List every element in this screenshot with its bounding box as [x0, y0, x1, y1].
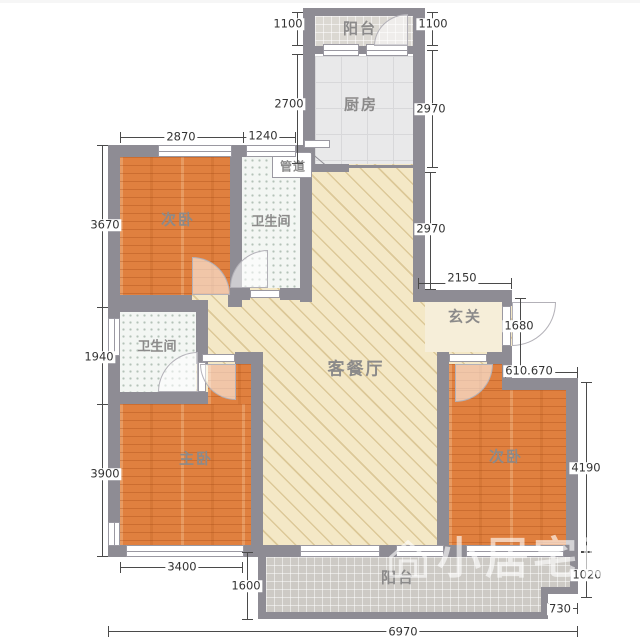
bedroom-right-label: 次卧: [489, 446, 523, 467]
master-bottom-window: [126, 545, 244, 557]
wall-entry-right-stub-top: [502, 292, 512, 306]
bedroom-right-door-leaf: [449, 354, 487, 362]
outside-area-top-right: [425, 140, 582, 292]
dim-balcony-top-left: 1100: [271, 18, 304, 30]
wall-bathroom-mid-bottom: [108, 392, 208, 404]
master-bedroom-floor: [120, 404, 251, 545]
duct-label: 管道: [280, 158, 306, 175]
bathroom-top-window: [246, 145, 296, 157]
wall-bathroom-top-bottom-a: [242, 288, 250, 300]
wall-balcony-bottom-main: [258, 612, 548, 619]
dim-bedroom-right-height: 4190: [569, 462, 602, 474]
wall-bathroom-mid-top: [108, 300, 208, 312]
bedroom-right-floor: [449, 390, 566, 545]
dim-living-upper-right: 2970: [414, 223, 447, 235]
dim-bathroom-mid-height: 1940: [82, 351, 115, 363]
wall-entry-top: [413, 290, 512, 302]
master-side-window: [108, 522, 120, 546]
floor-plan: 阳台 厨房 管道 次卧 卫生间 卫生间 客餐厅 玄关 主卧 次卧 阳台 1100…: [0, 0, 640, 642]
dim-master-width: 3400: [165, 561, 198, 573]
dim-balcony-top-right: 1100: [416, 18, 449, 30]
wall-bedroom-tl-bottom-b: [228, 295, 242, 307]
dim-kitchen-right: 2970: [414, 103, 447, 115]
dim-entry-width: 2150: [445, 272, 478, 284]
kitchen-label: 厨房: [344, 94, 378, 115]
living-balcony-window: [300, 545, 380, 557]
master-door-leaf: [202, 354, 235, 362]
living-dining-label: 客餐厅: [328, 355, 385, 380]
entry-label: 玄关: [448, 306, 482, 327]
wall-kitchen-living-right: [413, 8, 425, 302]
kitchen-sliding-track: [349, 165, 413, 168]
dim-total-width: 6970: [386, 626, 419, 638]
bedroom-top-left-label: 次卧: [161, 209, 195, 230]
bathroom-top-door-leaf: [250, 290, 280, 298]
dim-tick-left-mid1: [97, 307, 108, 308]
bathroom-top-label: 卫生间: [251, 211, 290, 230]
dim-balcony-depth: 1600: [229, 580, 262, 592]
bedroom-tl-window: [158, 145, 232, 157]
wall-master-right: [251, 352, 263, 552]
watermark-house-icon: [385, 536, 431, 582]
dim-master-height: 3900: [88, 468, 121, 480]
dim-balcony-step: 730: [547, 603, 573, 615]
watermark: 小居宅配: [385, 536, 629, 582]
wall-bathroom-top-bottom-b: [280, 288, 312, 300]
dim-bedroom-right-offset: 610.670: [503, 365, 555, 377]
balcony-top-label: 阳台: [343, 18, 377, 39]
kitchen-door-leaf: [304, 140, 330, 148]
dim-bedroom-tl-width: 2870: [164, 131, 197, 143]
dim-bathroom-top-width: 1240: [246, 130, 279, 142]
watermark-text: 小居宅配: [437, 537, 629, 581]
dim-entry-door: 1680: [502, 320, 535, 332]
wall-bedroom-right-left: [437, 352, 449, 552]
dim-tick-left-mid2: [97, 404, 108, 405]
wall-entry-bottom-b: [487, 352, 512, 364]
dim-kitchen-left: 2700: [272, 98, 305, 110]
balcony-kitchen-window-left: [323, 44, 359, 56]
master-bedroom-label: 主卧: [179, 448, 213, 469]
dim-line-total-width: [108, 631, 578, 632]
dim-bedroom-tl-height: 3670: [88, 219, 121, 231]
top-edge-strip: [0, 0, 640, 3]
dim-tick-top-mid: [243, 132, 244, 143]
bathroom-mid-label: 卫生间: [137, 336, 176, 355]
